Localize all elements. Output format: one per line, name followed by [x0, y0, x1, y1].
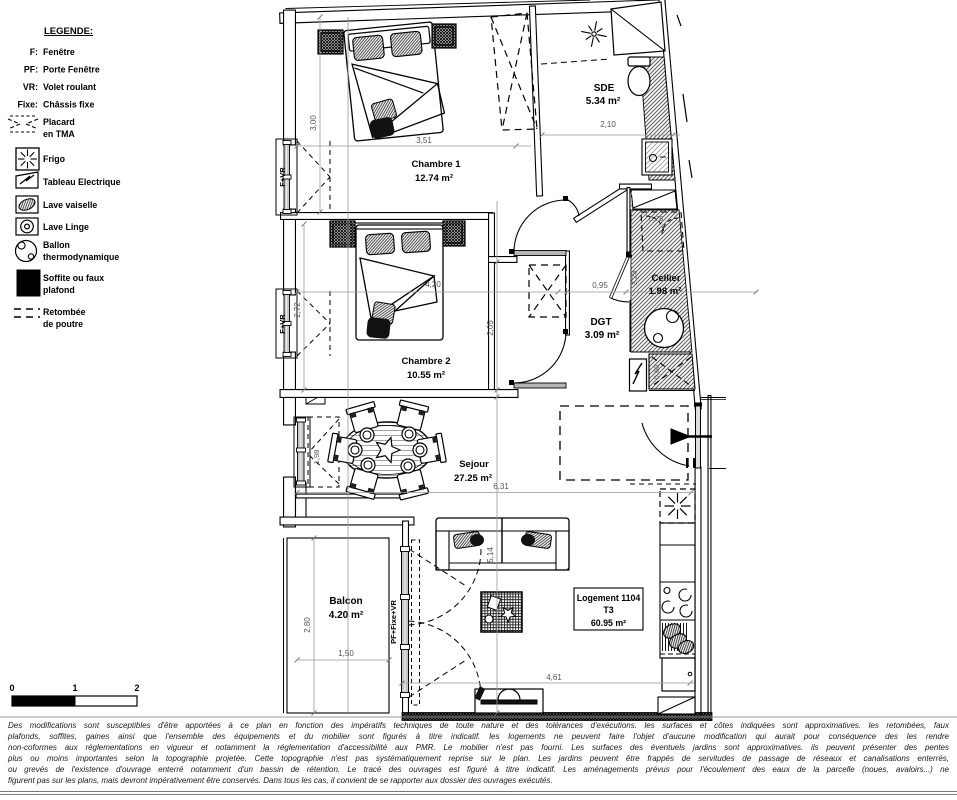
svg-text:LEGENDE:: LEGENDE:	[44, 26, 93, 37]
svg-text:12.74 m²: 12.74 m²	[415, 173, 453, 184]
svg-text:Lave Linge: Lave Linge	[43, 222, 89, 232]
svg-text:Ballon: Ballon	[43, 240, 70, 250]
svg-text:Retombée: Retombée	[43, 307, 86, 317]
svg-text:de poutre: de poutre	[43, 319, 83, 329]
svg-text:F+VR: F+VR	[278, 314, 287, 334]
svg-text:0,78: 0,78	[649, 214, 664, 223]
svg-text:Chambre 2: Chambre 2	[401, 356, 450, 367]
svg-text:0: 0	[9, 683, 14, 693]
svg-text:Châssis fixe: Châssis fixe	[43, 100, 94, 110]
svg-text:VR:: VR:	[23, 82, 38, 92]
svg-text:thermodynamique: thermodynamique	[43, 252, 119, 262]
svg-text:0,95: 0,95	[592, 281, 608, 290]
svg-text:1,98: 1,98	[312, 450, 321, 465]
svg-text:DGT: DGT	[590, 317, 611, 328]
svg-text:PF+Fixe+VR: PF+Fixe+VR	[389, 600, 398, 644]
svg-text:1,50: 1,50	[338, 649, 354, 658]
svg-text:10.55 m²: 10.55 m²	[407, 370, 445, 381]
svg-text:2,72: 2,72	[293, 302, 302, 318]
svg-text:1.98 m²: 1.98 m²	[649, 286, 682, 297]
svg-text:F+VR: F+VR	[278, 167, 287, 187]
svg-text:60.95 m²: 60.95 m²	[591, 618, 626, 628]
svg-text:3,00: 3,00	[309, 115, 318, 131]
svg-text:Soffite ou faux: Soffite ou faux	[43, 273, 104, 283]
svg-text:SDE: SDE	[594, 83, 615, 94]
svg-text:0,60: 0,60	[652, 365, 661, 380]
svg-text:Volet roulant: Volet roulant	[43, 82, 96, 92]
svg-text:5.34 m²: 5.34 m²	[586, 96, 621, 107]
svg-text:Logement 1104: Logement 1104	[577, 593, 641, 603]
svg-text:2,10: 2,10	[600, 120, 616, 129]
svg-text:6,31: 6,31	[493, 482, 509, 491]
svg-text:5,14: 5,14	[486, 547, 495, 563]
svg-text:2,23: 2,23	[630, 271, 639, 286]
svg-text:en TMA: en TMA	[43, 129, 75, 139]
svg-text:Cellier: Cellier	[651, 273, 680, 284]
svg-text:F:: F:	[30, 47, 38, 57]
svg-text:27.25 m²: 27.25 m²	[454, 473, 492, 484]
svg-text:4,20: 4,20	[425, 280, 441, 289]
svg-text:Balcon: Balcon	[329, 596, 362, 607]
svg-text:Placard: Placard	[43, 117, 75, 127]
svg-text:Fenêtre: Fenêtre	[43, 47, 75, 57]
svg-text:3,51: 3,51	[416, 136, 432, 145]
svg-text:Porte Fenêtre: Porte Fenêtre	[43, 65, 100, 75]
svg-text:Lave vaiselle: Lave vaiselle	[43, 200, 97, 210]
svg-text:4,61: 4,61	[546, 673, 562, 682]
svg-text:4.20 m²: 4.20 m²	[329, 610, 364, 621]
svg-text:Sejour: Sejour	[459, 459, 489, 470]
svg-text:3.09 m²: 3.09 m²	[585, 330, 620, 341]
svg-text:Fixe:: Fixe:	[17, 100, 38, 110]
svg-text:1: 1	[72, 683, 77, 693]
svg-text:Chambre 1: Chambre 1	[411, 159, 461, 170]
svg-text:PF:: PF:	[24, 65, 38, 75]
svg-text:T3: T3	[603, 605, 613, 615]
svg-text:Frigo: Frigo	[43, 154, 66, 164]
svg-text:plafond: plafond	[43, 285, 75, 295]
svg-text:2,05: 2,05	[486, 320, 495, 336]
svg-text:2,80: 2,80	[303, 617, 312, 633]
svg-text:Tableau Electrique: Tableau Electrique	[43, 177, 121, 187]
svg-text:2: 2	[134, 683, 139, 693]
